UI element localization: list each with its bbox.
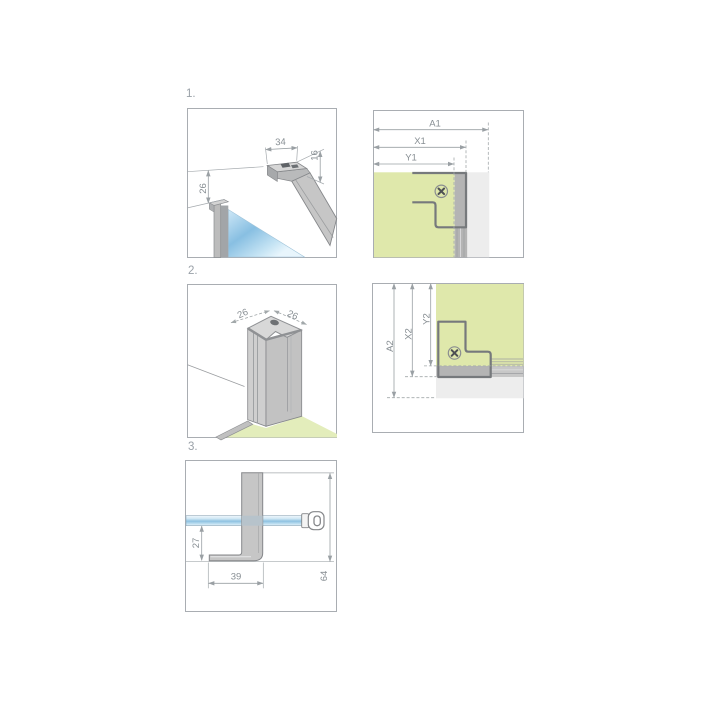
panel-corner-profile-isometric: 26 26 bbox=[187, 284, 337, 438]
dim-label-y1: Y1 bbox=[405, 153, 417, 164]
dim-label-a1: A1 bbox=[429, 119, 441, 130]
dim-label-y2: Y2 bbox=[422, 313, 433, 325]
corner-profile-post bbox=[248, 316, 302, 426]
dim-label-39: 39 bbox=[231, 572, 242, 583]
glass-area bbox=[436, 284, 524, 366]
glass-end-cap bbox=[302, 512, 324, 530]
step-1-label: 1. bbox=[186, 89, 196, 100]
dim-label-x1: X1 bbox=[414, 136, 426, 147]
panel-corner-top-view: A1 X1 Y1 bbox=[373, 110, 524, 258]
dim-label-x2: X2 bbox=[403, 328, 414, 340]
outer-panel-area bbox=[436, 377, 524, 398]
dim-label-26: 26 bbox=[198, 183, 209, 194]
diagram-page: 1. 2. 3. bbox=[0, 0, 720, 720]
panel-step1-bracket-detail: 34 16 26 bbox=[187, 108, 337, 258]
dim-label-a2: A2 bbox=[385, 340, 396, 352]
glass-behind-bracket bbox=[242, 516, 263, 526]
panel-wall-bracket-side-view: 27 39 64 bbox=[185, 460, 337, 612]
step-3-label: 3. bbox=[188, 442, 198, 453]
outer-panel-area bbox=[467, 172, 489, 257]
panel-corner-side-view: A2 X2 Y2 bbox=[372, 283, 524, 433]
dim-label-16: 16 bbox=[310, 150, 321, 161]
dim-label-64: 64 bbox=[319, 571, 330, 582]
dim-label-34: 34 bbox=[275, 137, 286, 149]
dim-label-27: 27 bbox=[191, 538, 202, 549]
step-2-label: 2. bbox=[188, 266, 198, 277]
profile-strip bbox=[438, 366, 490, 377]
